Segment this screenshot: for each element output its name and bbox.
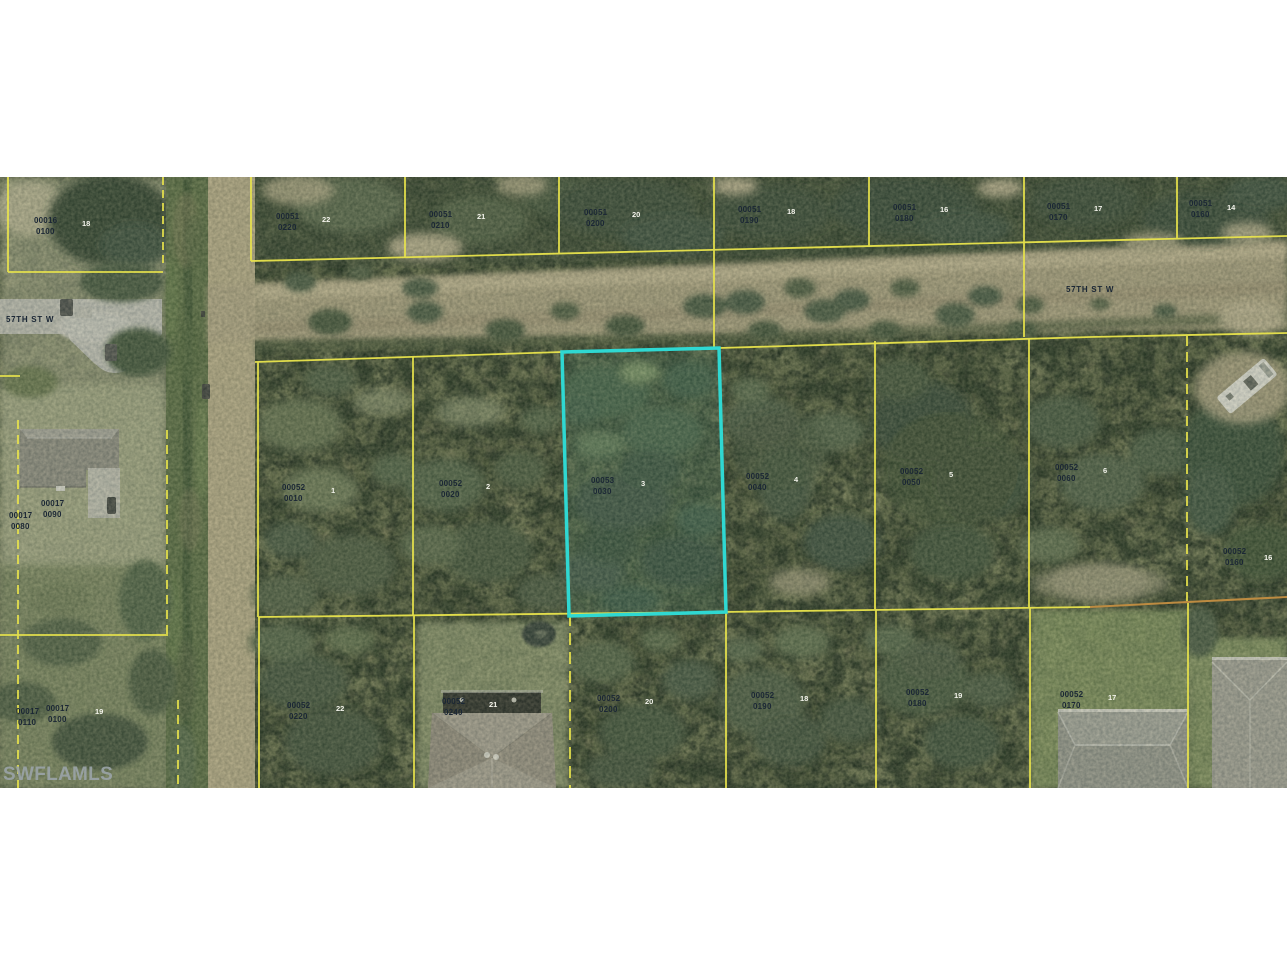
svg-text:57TH ST W: 57TH ST W [6,315,54,324]
svg-text:18: 18 [82,219,90,228]
svg-text:19: 19 [95,707,103,716]
svg-text:17: 17 [1108,693,1116,702]
svg-text:6: 6 [1103,466,1107,475]
svg-text:2: 2 [486,482,490,491]
svg-text:18: 18 [787,207,795,216]
svg-text:21: 21 [489,700,497,709]
svg-text:SWFLAMLS: SWFLAMLS [3,764,113,785]
svg-text:16: 16 [940,205,948,214]
svg-text:21: 21 [477,212,485,221]
svg-text:1: 1 [331,486,335,495]
svg-text:22: 22 [322,215,330,224]
svg-text:18: 18 [800,694,808,703]
svg-text:20: 20 [632,210,640,219]
svg-text:20: 20 [645,697,653,706]
svg-text:5: 5 [949,470,953,479]
svg-text:16: 16 [1264,553,1272,562]
svg-text:3: 3 [641,479,645,488]
svg-text:14: 14 [1227,203,1236,212]
svg-text:57TH ST W: 57TH ST W [1066,285,1114,294]
svg-text:17: 17 [1094,204,1102,213]
svg-text:22: 22 [336,704,344,713]
svg-text:19: 19 [954,691,962,700]
